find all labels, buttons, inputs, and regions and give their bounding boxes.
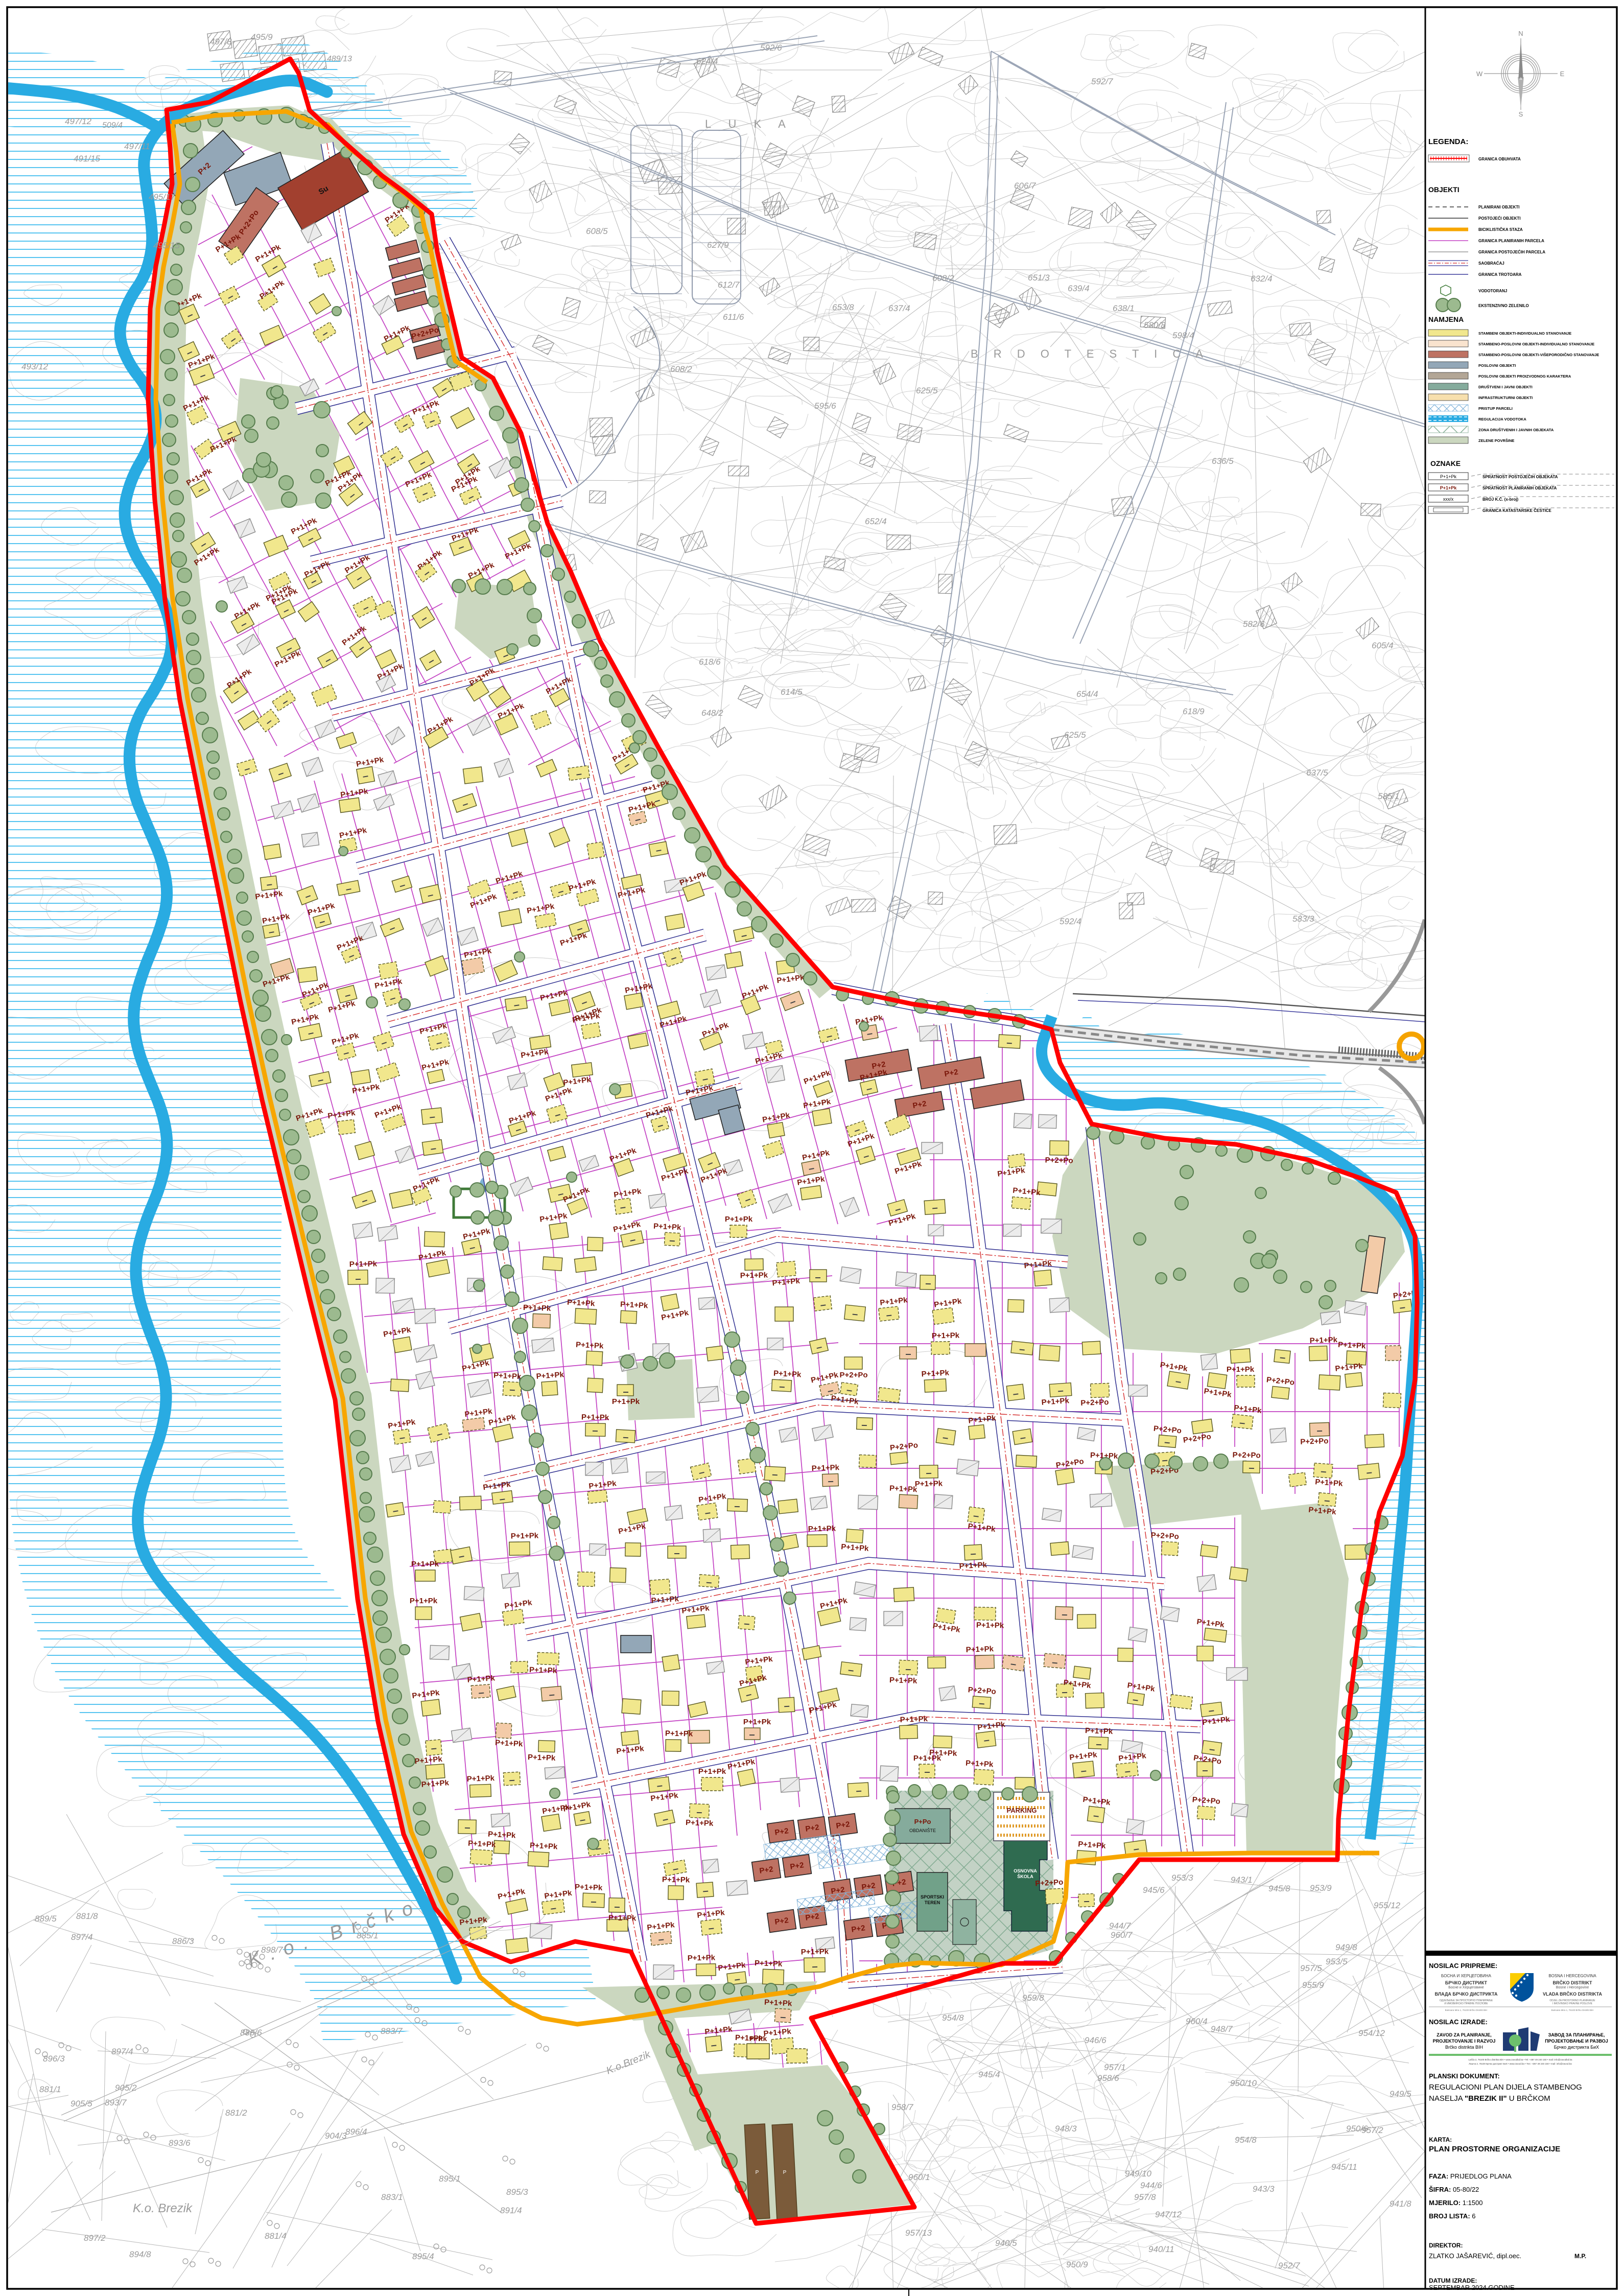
- svg-text:SPORTSKI: SPORTSKI: [921, 1894, 944, 1900]
- svg-text:637/4: 637/4: [888, 303, 910, 313]
- svg-text:955/12: 955/12: [1374, 1901, 1401, 1910]
- svg-text:OBDANIŠTE: OBDANIŠTE: [909, 1828, 936, 1833]
- svg-text:ŠKOLA: ŠKOLA: [1017, 1873, 1033, 1879]
- svg-text:M.P.: M.P.: [1574, 2253, 1586, 2260]
- svg-text:P+1+Pk: P+1+Pk: [915, 1480, 943, 1489]
- svg-text:xxx/x: xxx/x: [1443, 497, 1454, 502]
- svg-text:Босне и Херцеговине: Босне и Херцеговине: [1448, 1986, 1484, 1989]
- svg-text:495/15: 495/15: [153, 241, 180, 250]
- svg-text:MJERILO: 1:1500: MJERILO: 1:1500: [1429, 2199, 1483, 2207]
- svg-text:S: S: [1519, 110, 1523, 118]
- svg-text:PARKING: PARKING: [1007, 1807, 1037, 1814]
- svg-text:P+2+Po: P+2+Po: [1150, 1531, 1179, 1541]
- svg-text:P+1+Pk: P+1+Pk: [686, 1818, 714, 1828]
- svg-text:891/4: 891/4: [500, 2206, 522, 2215]
- svg-text:OBJEKTI: OBJEKTI: [1428, 185, 1460, 194]
- svg-text:STAMBENO-POSLOVNI OBJEKTI-VIŠE: STAMBENO-POSLOVNI OBJEKTI-VIŠEPORODIČNO …: [1478, 353, 1599, 357]
- svg-text:P+1+Pk: P+1+Pk: [1440, 485, 1457, 490]
- svg-text:P+1+Pk: P+1+Pk: [755, 1959, 783, 1969]
- svg-text:509/4: 509/4: [102, 121, 123, 130]
- svg-text:P+1+Pk: P+1+Pk: [528, 1753, 556, 1763]
- svg-text:P+1+Pk: P+1+Pk: [662, 1876, 690, 1885]
- svg-text:489/13: 489/13: [327, 55, 352, 63]
- svg-text:Lašča 2, 76100 Brčko distrikta: Lašča 2, 76100 Brčko distrikta BiH • www…: [1469, 2058, 1572, 2061]
- svg-text:651/3: 651/3: [1028, 273, 1050, 283]
- svg-text:955/9: 955/9: [1302, 1980, 1324, 1990]
- svg-text:P+1+Pk: P+1+Pk: [349, 1260, 378, 1269]
- svg-text:POSLOVNI OBJEKTI PROIZVODNOG: POSLOVNI OBJEKTI PROIZVODNOG KARAKTERA: [1478, 374, 1571, 379]
- svg-text:608/5: 608/5: [586, 226, 608, 236]
- svg-text:P+1+Pk: P+1+Pk: [575, 1883, 603, 1892]
- svg-text:948/3: 948/3: [1055, 2124, 1077, 2134]
- svg-text:949/5: 949/5: [1390, 2089, 1411, 2099]
- svg-text:957/1: 957/1: [1104, 2063, 1126, 2072]
- svg-text:895/1: 895/1: [439, 2174, 461, 2184]
- svg-text:598/4: 598/4: [1172, 331, 1194, 340]
- svg-text:OSNOVNA: OSNOVNA: [1014, 1868, 1037, 1873]
- svg-text:897/4: 897/4: [71, 1932, 93, 1942]
- svg-text:625/5: 625/5: [1064, 730, 1086, 740]
- svg-text:580/8: 580/8: [1144, 320, 1166, 330]
- svg-text:606/7: 606/7: [1014, 181, 1036, 191]
- svg-text:GRANICA POSTOJEĆIH PARCELA: GRANICA POSTOJEĆIH PARCELA: [1478, 250, 1545, 254]
- svg-text:P+1+Pk: P+1+Pk: [740, 1271, 768, 1280]
- svg-text:592/6: 592/6: [760, 43, 782, 53]
- svg-text:P+1+Pk: P+1+Pk: [1338, 1341, 1367, 1351]
- svg-text:BICIKLISTIČKA STAZA: BICIKLISTIČKA STAZA: [1478, 227, 1523, 232]
- svg-text:491/15: 491/15: [74, 154, 101, 163]
- svg-text:P+1+Pk: P+1+Pk: [801, 1948, 829, 1957]
- svg-text:608/2: 608/2: [932, 273, 954, 283]
- svg-text:497/12: 497/12: [65, 116, 92, 126]
- svg-text:614/5: 614/5: [781, 687, 803, 697]
- svg-text:625/5: 625/5: [916, 386, 938, 395]
- svg-text:L U K A: L U K A: [705, 118, 793, 130]
- svg-text:P+1+Pk: P+1+Pk: [808, 1525, 836, 1534]
- svg-text:GRANICA OBUHVATA: GRANICA OBUHVATA: [1478, 157, 1521, 161]
- svg-text:653/8: 653/8: [832, 302, 854, 312]
- svg-text:P+1+Pk: P+1+Pk: [932, 1331, 960, 1341]
- svg-text:VLADA BRČKO DISTRIKTA: VLADA BRČKO DISTRIKTA: [1543, 1991, 1602, 1997]
- svg-text:957/5: 957/5: [1300, 1963, 1322, 1973]
- svg-text:940/11: 940/11: [1148, 2244, 1174, 2254]
- svg-text:P+2+Po: P+2+Po: [1045, 1156, 1073, 1165]
- svg-text:954/8: 954/8: [942, 2013, 964, 2023]
- svg-text:P+1+Pk: P+1+Pk: [530, 1841, 558, 1852]
- svg-text:BROJ K.Č. (x-broj): BROJ K.Č. (x-broj): [1482, 497, 1519, 502]
- svg-text:895/3: 895/3: [506, 2187, 528, 2197]
- svg-text:P+1+Pk: P+1+Pk: [493, 1371, 522, 1381]
- svg-text:946/6: 946/6: [1085, 2035, 1107, 2045]
- svg-text:618/9: 618/9: [1183, 707, 1205, 716]
- svg-text:957/8: 957/8: [1134, 2192, 1156, 2202]
- svg-text:FAZA: PRIJEDLOG PLANA: FAZA: PRIJEDLOG PLANA: [1429, 2172, 1512, 2180]
- svg-text:Bulevara Mira 1, 76100 Brčko D: Bulevara Mira 1, 76100 Brčko Distrikt Bi…: [1551, 2009, 1594, 2011]
- svg-text:БРЧКО ДИСТРИКТ: БРЧКО ДИСТРИКТ: [1445, 1980, 1488, 1985]
- svg-text:953/3: 953/3: [1171, 1873, 1193, 1883]
- svg-text:883/7: 883/7: [381, 2026, 403, 2036]
- svg-text:ZELENE POVRŠINE: ZELENE POVRŠINE: [1478, 438, 1514, 443]
- svg-text:P+1+Pk: P+1+Pk: [959, 1561, 987, 1571]
- svg-text:GRANICA TROTOARA: GRANICA TROTOARA: [1478, 272, 1522, 277]
- svg-text:497/8: 497/8: [210, 37, 232, 46]
- svg-text:881/8: 881/8: [76, 1911, 98, 1921]
- svg-text:959/8: 959/8: [1022, 1993, 1044, 2003]
- svg-text:ZLATKO JAŠAREVIĆ, dipl.oec.: ZLATKO JAŠAREVIĆ, dipl.oec.: [1429, 2252, 1521, 2260]
- svg-text:950/10: 950/10: [1230, 2078, 1257, 2088]
- svg-text:881/4: 881/4: [265, 2231, 287, 2241]
- svg-text:OZNAKE: OZNAKE: [1430, 459, 1461, 467]
- svg-text:K.o. Brezik: K.o. Brezik: [133, 2201, 193, 2215]
- svg-text:STAMBENO-POSLOVNI OBJEKTI-INDI: STAMBENO-POSLOVNI OBJEKTI-INDIVIDUALNO S…: [1478, 342, 1594, 346]
- svg-text:P+1+Pk: P+1+Pk: [466, 1774, 495, 1784]
- svg-text:Brčko distrikta BIH: Brčko distrikta BIH: [1445, 2045, 1483, 2050]
- svg-text:PRISTUP PARCELI: PRISTUP PARCELI: [1478, 406, 1513, 411]
- svg-text:STAMBENI OBJEKTI-INDIVIDUALNO: STAMBENI OBJEKTI-INDIVIDUALNO STANOVANJE: [1478, 331, 1571, 336]
- svg-text:582/6: 582/6: [1243, 619, 1265, 629]
- svg-text:495/9: 495/9: [251, 32, 273, 42]
- svg-text:637/5: 637/5: [1306, 768, 1328, 778]
- svg-text:P+1+Pk: P+1+Pk: [889, 1484, 918, 1494]
- svg-text:REGULACIJA VODOTOKA: REGULACIJA VODOTOKA: [1478, 417, 1526, 421]
- svg-text:P+1+Pk: P+1+Pk: [743, 1718, 771, 1726]
- svg-text:P+1+Pk: P+1+Pk: [495, 1739, 524, 1749]
- svg-text:605/4: 605/4: [1372, 641, 1394, 650]
- svg-text:883/1: 883/1: [381, 2192, 403, 2202]
- svg-text:P+1+Pk: P+1+Pk: [488, 1830, 516, 1840]
- svg-text:P: P: [783, 2170, 787, 2175]
- svg-text:REGULACIONI PLAN DIJELA STAMBE: REGULACIONI PLAN DIJELA STAMBENOG: [1429, 2083, 1582, 2092]
- svg-text:945/8: 945/8: [1268, 1884, 1290, 1893]
- svg-text:960/1: 960/1: [908, 2172, 930, 2182]
- svg-text:950/6: 950/6: [1346, 2124, 1368, 2134]
- svg-text:POSLOVNI OBJEKTI: POSLOVNI OBJEKTI: [1478, 363, 1516, 368]
- svg-text:SPRATNOST PLANIRANIH OBJEKATA: SPRATNOST PLANIRANIH OBJEKATA: [1482, 486, 1557, 490]
- svg-text:P+1+Pk: P+1+Pk: [913, 1754, 942, 1763]
- svg-text:P+2+Po: P+2+Po: [1080, 1398, 1109, 1408]
- svg-text:P+1+Pk: P+1+Pk: [698, 1767, 726, 1776]
- svg-text:P+1+Pk: P+1+Pk: [523, 1303, 551, 1313]
- svg-text:652/4: 652/4: [865, 517, 887, 526]
- svg-text:960/7: 960/7: [1111, 1930, 1133, 1940]
- svg-text:P+1+Pk: P+1+Pk: [529, 1666, 557, 1675]
- svg-text:PLANSKI DOKUMENT:: PLANSKI DOKUMENT:: [1429, 2072, 1500, 2080]
- svg-text:639/4: 639/4: [1068, 284, 1090, 293]
- svg-text:SPRATNOST POSTOJEĆIH OBJEKATA: SPRATNOST POSTOJEĆIH OBJEKATA: [1482, 475, 1558, 479]
- svg-text:ZAVOD ZA PLANIRANJE,: ZAVOD ZA PLANIRANJE,: [1437, 2032, 1492, 2037]
- svg-text:881/2: 881/2: [225, 2108, 247, 2118]
- svg-text:954/12: 954/12: [1358, 2028, 1385, 2038]
- svg-text:612/7: 612/7: [718, 280, 740, 290]
- svg-text:648/2: 648/2: [701, 708, 723, 718]
- svg-text:KARTA:: KARTA:: [1429, 2136, 1452, 2143]
- svg-text:Брчко дистрикта БиХ: Брчко дистрикта БиХ: [1554, 2045, 1599, 2050]
- svg-text:P+1+Pk: P+1+Pk: [688, 1954, 716, 1963]
- svg-text:P+2+Po: P+2+Po: [1232, 1451, 1260, 1460]
- svg-text:943/3: 943/3: [1253, 2184, 1275, 2194]
- svg-text:583/3: 583/3: [1292, 914, 1314, 924]
- svg-text:BROJ LISTA: 6: BROJ LISTA: 6: [1429, 2212, 1476, 2220]
- svg-text:960/4: 960/4: [1186, 2017, 1208, 2026]
- svg-text:958/7: 958/7: [891, 2102, 913, 2112]
- svg-text:611/6: 611/6: [723, 312, 744, 322]
- svg-text:ZONA DRUŠTVENIH I JAVNIH OBJEK: ZONA DRUŠTVENIH I JAVNIH OBJEKATA: [1478, 428, 1554, 432]
- svg-text:894/8: 894/8: [129, 2250, 151, 2259]
- svg-text:948/7: 948/7: [1211, 2024, 1233, 2034]
- svg-text:Bulevara Mira 1, 76100 Brčko D: Bulevara Mira 1, 76100 Brčko Distrikt Bi…: [1445, 2009, 1488, 2011]
- svg-text:ЗАВОД ЗА ПЛАНИРАЊЕ,: ЗАВОД ЗА ПЛАНИРАЊЕ,: [1548, 2032, 1605, 2037]
- svg-text:TEREN: TEREN: [925, 1900, 940, 1905]
- svg-text:P+1+Pk: P+1+Pk: [889, 1676, 917, 1685]
- svg-text:W: W: [1476, 70, 1483, 78]
- svg-text:BRČKO DISTRIKT: BRČKO DISTRIKT: [1553, 1980, 1592, 1985]
- svg-text:495/17: 495/17: [149, 192, 176, 202]
- svg-text:P+1+Pk: P+1+Pk: [966, 1759, 994, 1769]
- svg-text:P+1+Pk: P+1+Pk: [411, 1560, 439, 1568]
- svg-text:P+1+Pk: P+1+Pk: [966, 1645, 994, 1654]
- svg-text:BOSNA I HERCEGOVINA: BOSNA I HERCEGOVINA: [1548, 1974, 1596, 1978]
- svg-text:SAOBRAĆAJ: SAOBRAĆAJ: [1478, 261, 1504, 266]
- svg-text:585/1: 585/1: [1378, 791, 1400, 801]
- svg-text:949/8: 949/8: [1335, 1942, 1357, 1952]
- svg-text:PLAN PROSTORNE ORGANIZACIJE: PLAN PROSTORNE ORGANIZACIJE: [1429, 2145, 1560, 2153]
- svg-text:945/11: 945/11: [1331, 2162, 1357, 2172]
- svg-text:P+2+Po: P+2+Po: [1300, 1437, 1329, 1446]
- svg-text:632/4: 632/4: [1251, 274, 1273, 284]
- svg-text:897/4: 897/4: [111, 2047, 133, 2056]
- svg-text:889/5: 889/5: [35, 1914, 57, 1924]
- svg-text:952/7: 952/7: [1278, 2261, 1300, 2270]
- svg-text:B R D O T E S T I C A: B R D O T E S T I C A: [971, 347, 1209, 360]
- svg-text:LEGENDA:: LEGENDA:: [1428, 137, 1468, 146]
- svg-text:NAMJENA: NAMJENA: [1428, 315, 1464, 323]
- svg-text:897/2: 897/2: [84, 2233, 106, 2243]
- svg-text:958/6: 958/6: [1097, 2073, 1119, 2083]
- svg-text:И ИМОВИНСКО ПРАВНЕ ПОСЛОВЕ: И ИМОВИНСКО ПРАВНЕ ПОСЛОВЕ: [1444, 2002, 1488, 2005]
- svg-text:493/12: 493/12: [21, 362, 49, 371]
- svg-text:P+1+Pk: P+1+Pk: [773, 1369, 802, 1379]
- svg-text:P+2+Po: P+2+Po: [1035, 1878, 1064, 1888]
- svg-text:886/3: 886/3: [172, 1936, 194, 1946]
- svg-text:954/8: 954/8: [1235, 2135, 1257, 2145]
- svg-text:595/6: 595/6: [814, 401, 836, 411]
- svg-text:SEPTEMBAR 2024.GODINE: SEPTEMBAR 2024.GODINE: [1429, 2284, 1515, 2291]
- svg-text:P+1+Pk: P+1+Pk: [612, 1397, 640, 1406]
- svg-text:P+1+Pk: P+1+Pk: [620, 1300, 649, 1310]
- svg-text:DIREKTOR:: DIREKTOR:: [1429, 2242, 1463, 2249]
- svg-text:PLANIRANI OBJEKTI: PLANIRANI OBJEKTI: [1478, 205, 1519, 209]
- svg-text:Лашча 2, 76100 Брчко дистрикт: Лашча 2, 76100 Брчко дистрикт БиХ • www.…: [1469, 2063, 1572, 2065]
- svg-text:P+1+Pk: P+1+Pk: [811, 1463, 839, 1473]
- svg-text:654/4: 654/4: [1076, 689, 1098, 699]
- svg-text:905/5: 905/5: [70, 2099, 92, 2108]
- svg-text:E: E: [1560, 70, 1565, 78]
- svg-text:898/7: 898/7: [261, 1945, 283, 1955]
- svg-text:896/3: 896/3: [43, 2054, 65, 2064]
- svg-text:POSTOJEĆI OBJEKTI: POSTOJEĆI OBJEKTI: [1478, 216, 1521, 221]
- svg-text:618/6: 618/6: [699, 657, 721, 667]
- svg-text:P+1+Pk: P+1+Pk: [1227, 1365, 1255, 1374]
- svg-text:ŠIFRA: 05-80/22: ŠIFRA: 05-80/22: [1429, 2186, 1479, 2193]
- svg-text:940/5: 940/5: [995, 2238, 1017, 2248]
- svg-text:608/2: 608/2: [670, 364, 692, 374]
- svg-text:947/12: 947/12: [1155, 2210, 1182, 2219]
- svg-text:P+1+Pk: P+1+Pk: [653, 1222, 682, 1232]
- svg-text:GRANICA PLANIRANIH PARCELA: GRANICA PLANIRANIH PARCELA: [1478, 239, 1544, 243]
- svg-text:DATUM IZRADE:: DATUM IZRADE:: [1429, 2277, 1477, 2284]
- svg-text:P+Po: P+Po: [914, 1818, 931, 1825]
- svg-text:P+1+Pk: P+1+Pk: [511, 1532, 539, 1541]
- svg-text:953/5: 953/5: [1326, 1957, 1348, 1966]
- svg-text:P+1+Pk: P+1+Pk: [567, 1298, 596, 1308]
- svg-text:905/2: 905/2: [115, 2083, 137, 2093]
- svg-text:896/4: 896/4: [345, 2127, 367, 2137]
- svg-text:I IMOVINSKO PRAVNE POSLOVE: I IMOVINSKO PRAVNE POSLOVE: [1552, 2002, 1593, 2005]
- svg-text:627/9: 627/9: [707, 240, 729, 250]
- svg-text:497/11: 497/11: [124, 142, 150, 151]
- svg-text:953/9: 953/9: [1310, 1883, 1332, 1893]
- svg-text:P+1+Pk: P+1+Pk: [468, 1839, 497, 1849]
- svg-text:624/4: 624/4: [696, 56, 718, 66]
- svg-text:NOSILAC PRIPREME:: NOSILAC PRIPREME:: [1429, 1962, 1497, 1970]
- svg-text:P+1+Pk: P+1+Pk: [608, 1914, 637, 1923]
- svg-text:592/7: 592/7: [1091, 77, 1113, 86]
- svg-text:945/4: 945/4: [978, 2070, 1000, 2079]
- svg-text:638/1: 638/1: [1113, 303, 1135, 313]
- svg-text:950/9: 950/9: [1066, 2260, 1088, 2269]
- svg-text:893/7: 893/7: [105, 2098, 127, 2107]
- svg-text:P+1+Pk: P+1+Pk: [665, 1729, 693, 1739]
- svg-text:БОСНА И ХЕРЦЕГОВИНА: БОСНА И ХЕРЦЕГОВИНА: [1441, 1974, 1492, 1978]
- svg-text:ВЛАДА БРЧКО ДИСТРИКТА: ВЛАДА БРЧКО ДИСТРИКТА: [1435, 1992, 1498, 1997]
- svg-text:P+Pk: P+Pk: [749, 2034, 767, 2043]
- svg-text:943/1: 943/1: [1231, 1875, 1253, 1885]
- svg-text:893/6: 893/6: [169, 2138, 191, 2148]
- svg-text:P: P: [756, 2170, 759, 2175]
- svg-text:P+1+Pk: P+1+Pk: [921, 1369, 950, 1379]
- svg-text:EKSTENZIVNO ZELENILO: EKSTENZIVNO ZELENILO: [1478, 303, 1529, 308]
- svg-text:P+1+Pk: P+1+Pk: [976, 1621, 1004, 1630]
- svg-text:INFRASTRUKTURNI OBJEKTI: INFRASTRUKTURNI OBJEKTI: [1478, 395, 1533, 400]
- svg-text:P+1+Pk: P+1+Pk: [764, 1998, 793, 2008]
- svg-text:NOSILAC IZRADE:: NOSILAC IZRADE:: [1429, 2018, 1488, 2026]
- svg-text:895/4: 895/4: [412, 2252, 434, 2261]
- svg-text:P+1+Pk: P+1+Pk: [900, 1715, 928, 1724]
- svg-text:P+1+Pk: P+1+Pk: [410, 1597, 438, 1605]
- svg-text:DRUŠTVENI I JAVNI OBJEKTI: DRUŠTVENI I JAVNI OBJEKTI: [1478, 385, 1533, 389]
- svg-text:P+1+Pk: P+1+Pk: [725, 1215, 753, 1224]
- svg-text:881/1: 881/1: [39, 2084, 61, 2094]
- svg-text:NASELJA "BREZIK II" U BRČKOM: NASELJA "BREZIK II" U BRČKOM: [1429, 2094, 1550, 2103]
- svg-text:P+1+Pk: P+1+Pk: [1440, 474, 1457, 479]
- svg-text:949/10: 949/10: [1125, 2169, 1152, 2178]
- svg-text:957/13: 957/13: [905, 2228, 932, 2238]
- svg-text:PROJEKTOVANJE I RAZVOJ: PROJEKTOVANJE I RAZVOJ: [1433, 2039, 1496, 2044]
- svg-text:Bosne i Hercegovine: Bosne i Hercegovine: [1556, 1986, 1589, 1989]
- svg-text:P+2+Po: P+2+Po: [839, 1371, 867, 1379]
- svg-text:P+1+Pk: P+1+Pk: [576, 1341, 604, 1351]
- svg-text:P+1+Pk: P+1+Pk: [1085, 1726, 1113, 1736]
- svg-text:592/4: 592/4: [1060, 917, 1081, 926]
- svg-text:636/5: 636/5: [1212, 456, 1234, 466]
- svg-text:P+1+Pk: P+1+Pk: [1309, 1336, 1337, 1345]
- svg-text:944/7: 944/7: [1109, 1921, 1131, 1931]
- svg-text:P+1+Pk: P+1+Pk: [581, 1413, 609, 1422]
- svg-text:ПРОЈЕКТОВАЊЕ И РАЗВОЈ: ПРОЈЕКТОВАЊЕ И РАЗВОЈ: [1545, 2039, 1608, 2044]
- svg-text:GRANICA KATASTARSKE ČESTICE: GRANICA KATASTARSKE ČESTICE: [1482, 508, 1551, 513]
- svg-text:885/1: 885/1: [357, 1931, 379, 1940]
- svg-text:941/8: 941/8: [1390, 2199, 1411, 2209]
- svg-text:N: N: [1518, 30, 1523, 37]
- svg-text:945/6: 945/6: [1143, 1885, 1165, 1895]
- svg-text:VODOTORANJ: VODOTORANJ: [1478, 289, 1507, 293]
- svg-text:944/6: 944/6: [1140, 2181, 1162, 2190]
